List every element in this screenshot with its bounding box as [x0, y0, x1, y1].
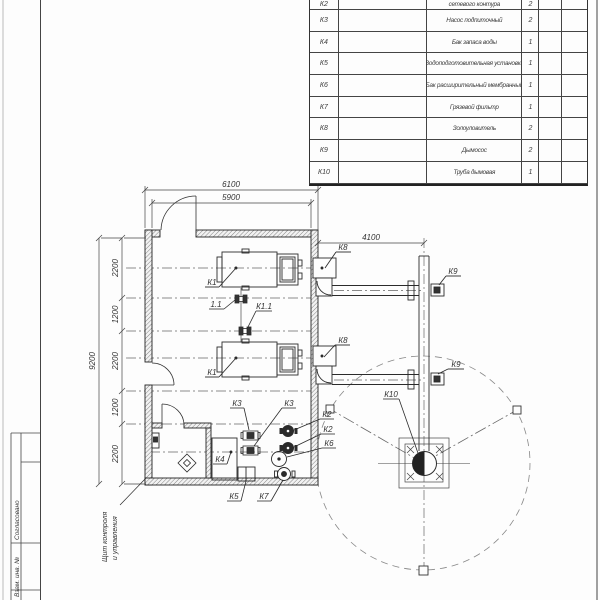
row-qty: 1	[522, 97, 539, 118]
row-designation	[339, 53, 427, 74]
row-designation	[339, 0, 427, 9]
control-panel-note-line1: Щит контроля	[102, 511, 109, 562]
row-mass	[539, 53, 562, 74]
row-qty: 1	[522, 32, 539, 53]
row-note	[562, 118, 587, 139]
callout-valve-a: 1.1	[210, 300, 221, 309]
callout-boiler-1: К1	[207, 278, 216, 287]
row-note	[562, 0, 587, 9]
row-qty: 2	[522, 140, 539, 161]
control-panel	[120, 433, 159, 505]
dim-overall-width: 6100	[222, 180, 240, 189]
callout-feed-pump-1: К3	[232, 399, 242, 408]
row-designation	[339, 140, 427, 161]
row-note	[562, 140, 587, 161]
boiler-valves	[209, 288, 272, 342]
row-designation	[339, 97, 427, 118]
row-name: Водоподготовительная установка	[427, 53, 522, 74]
row-name: Золоуловитель	[427, 118, 522, 139]
dim-overall-height: 9200	[88, 352, 97, 370]
row-pos: К5	[310, 53, 339, 74]
row-qty: 1	[522, 162, 539, 183]
dim-chain-3: 2200	[111, 352, 120, 371]
row-name: сетевого контура	[427, 0, 522, 9]
row-pos: К9	[310, 140, 339, 161]
row-name: Грязевой фильтр	[427, 97, 522, 118]
table-row-k2: К2 сетевого контура 2	[310, 0, 587, 10]
row-mass	[539, 75, 562, 96]
callout-boiler-2: К1	[207, 368, 216, 377]
callout-water-treatment: К5	[229, 492, 239, 501]
row-mass	[539, 140, 562, 161]
callout-smoke-exhauster-upper: К9	[448, 267, 458, 276]
row-mass	[539, 97, 562, 118]
row-qty: 1	[522, 53, 539, 74]
inventory-number-label: Взам. инв. №	[14, 557, 21, 597]
callout-feed-pump-2: К3	[284, 399, 294, 408]
callout-dirt-filter: К7	[259, 492, 269, 501]
callout-valve-b: К1.1	[256, 302, 272, 311]
control-panel-note-line2: и управления	[112, 516, 119, 560]
row-name: Насос подпиточный	[427, 10, 522, 31]
row-qty: 2	[522, 0, 539, 9]
row-qty: 1	[522, 75, 539, 96]
row-pos: К10	[310, 162, 339, 183]
row-note	[562, 162, 587, 183]
table-row-k4: К4 Бак запаса воды 1	[310, 32, 587, 54]
row-pos: К6	[310, 75, 339, 96]
dim-chain-2: 1200	[111, 305, 120, 323]
callout-network-pump-2: К2	[323, 425, 333, 434]
dim-chain-5: 2200	[111, 445, 120, 464]
callout-chimney: К10	[384, 390, 398, 399]
row-designation	[339, 32, 427, 53]
boiler-2	[205, 339, 302, 380]
row-pos: К4	[310, 32, 339, 53]
dim-chain-1: 2200	[111, 259, 120, 278]
callout-ash-collector-lower: К8	[338, 336, 348, 345]
row-pos: К8	[310, 118, 339, 139]
callout-expansion-tank: К6	[324, 439, 334, 448]
row-designation	[339, 10, 427, 31]
dim-chain-4: 1200	[111, 398, 120, 416]
row-pos: К2	[310, 0, 339, 9]
row-designation	[339, 75, 427, 96]
row-note	[562, 75, 587, 96]
floor-drain	[178, 454, 196, 472]
table-row-k7: К7 Грязевой фильтр 1	[310, 97, 587, 119]
row-mass	[539, 0, 562, 9]
callout-smoke-exhauster-lower: К9	[451, 360, 461, 369]
axis-centerlines	[126, 238, 424, 575]
callout-ash-collector-upper: К8	[338, 243, 348, 252]
table-row-k9: К9 Дымосос 2	[310, 140, 587, 162]
row-note	[562, 53, 587, 74]
row-name: Бак расширительный мембранный	[427, 75, 522, 96]
row-name: Бак запаса воды	[427, 32, 522, 53]
table-row-k3: К3 Насос подпиточный 2	[310, 10, 587, 32]
row-pos: К3	[310, 10, 339, 31]
guy-anchor	[326, 405, 521, 575]
row-note	[562, 10, 587, 31]
row-mass	[539, 10, 562, 31]
table-row-k5: К5 Водоподготовительная установка 1	[310, 53, 587, 75]
row-mass	[539, 32, 562, 53]
table-row-k10: К10 Труба дымовая 1	[310, 162, 587, 184]
row-mass	[539, 118, 562, 139]
dim-chimney-offset: 4100	[362, 233, 380, 242]
callout-network-pump-1: К2	[322, 410, 332, 419]
row-qty: 2	[522, 10, 539, 31]
table-row-k6: К6 Бак расширительный мембранный 1	[310, 75, 587, 97]
row-designation	[339, 162, 427, 183]
flue-upper	[313, 252, 461, 300]
approved-label: Согласовано	[14, 500, 21, 540]
row-note	[562, 97, 587, 118]
boiler-1	[205, 249, 302, 290]
row-mass	[539, 162, 562, 183]
row-pos: К7	[310, 97, 339, 118]
row-name: Дымосос	[427, 140, 522, 161]
callout-water-tank: К4	[215, 455, 225, 464]
row-name: Труба дымовая	[427, 162, 522, 183]
flue-lower	[313, 345, 464, 389]
equipment-table: К2 сетевого контура 2 К3 Насос подпиточн…	[309, 0, 588, 186]
dim-inner-width: 5900	[222, 193, 240, 202]
drawing-sheet: Согласовано Взам. инв. №	[0, 0, 600, 600]
row-note	[562, 32, 587, 53]
row-designation	[339, 118, 427, 139]
table-row-k8: К8 Золоуловитель 2	[310, 118, 587, 140]
row-qty: 2	[522, 118, 539, 139]
